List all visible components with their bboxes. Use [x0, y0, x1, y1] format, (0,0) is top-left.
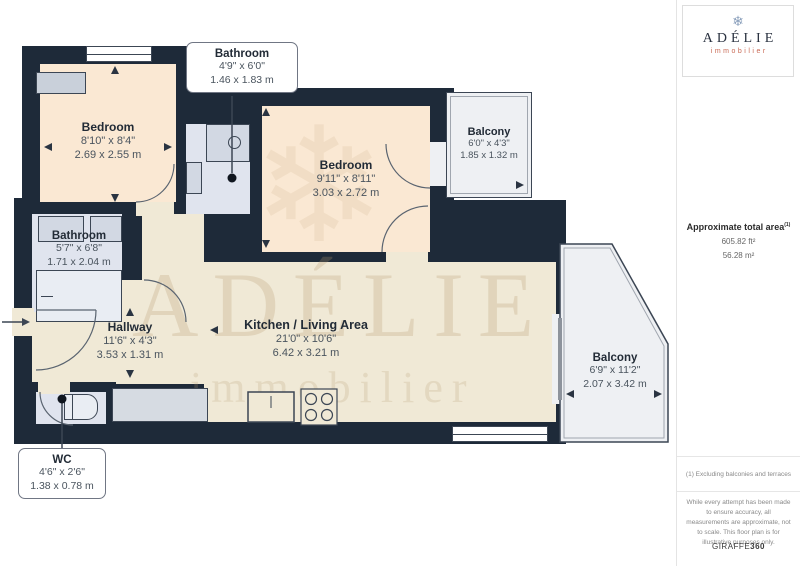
total-area-title: Approximate total area(1): [677, 222, 800, 232]
room-dim-metric: 1.71 x 2.04 m: [20, 256, 138, 270]
agency-logo: ❄ ADÉLIE immobilier: [682, 5, 794, 77]
room-name: Kitchen / Living Area: [196, 318, 416, 332]
door-opening: [38, 382, 70, 394]
room-floor-corridor: [142, 214, 204, 314]
door-opening: [136, 202, 174, 216]
room-dim-metric: 1.38 x 0.78 m: [21, 480, 103, 494]
total-area-imperial: 605.82 ft²: [677, 237, 800, 246]
room-label-bedroom-1: Bedroom 8'10" x 8'4" 2.69 x 2.55 m: [40, 120, 176, 163]
info-sidebar: ❄ ADÉLIE immobilier Approximate total ar…: [676, 0, 800, 566]
room-dim-imperial: 4'6" x 2'6": [21, 466, 103, 480]
room-label-hallway: Hallway 11'6" x 4'3" 3.53 x 1.31 m: [58, 320, 202, 363]
shower-drain-icon: [228, 136, 241, 149]
room-name: Bathroom: [189, 48, 295, 60]
room-dim-imperial: 21'0" x 10'6": [196, 332, 416, 346]
room-dim-metric: 1.85 x 1.32 m: [444, 150, 534, 162]
window: [86, 46, 152, 62]
floorplan-page: ❄ ADÉLIE immobilier: [0, 0, 800, 566]
room-label-bathroom-left: Bathroom 5'7" x 6'8" 1.71 x 2.04 m: [20, 230, 138, 269]
agency-tagline: immobilier: [683, 48, 793, 55]
total-area-block: Approximate total area(1) 605.82 ft² 56.…: [677, 222, 800, 260]
room-name: Hallway: [58, 320, 202, 334]
room-dim-metric: 3.53 x 1.31 m: [58, 348, 202, 362]
total-area-metric: 56.28 m²: [677, 251, 800, 260]
window: [452, 426, 548, 442]
bathtub: [36, 270, 122, 322]
room-dim-metric: 2.69 x 2.55 m: [40, 148, 176, 162]
balcony-bottom-outline: [560, 244, 668, 442]
room-dim-metric: 2.07 x 3.42 m: [556, 378, 674, 392]
room-dim-imperial: 6'9" x 11'2": [556, 364, 674, 378]
room-dim-imperial: 5'7" x 6'8": [20, 242, 138, 256]
door-opening: [122, 280, 144, 322]
giraffe360-brand: GIRAFFE360: [677, 542, 800, 551]
callout-wc: WC 4'6" x 2'6" 1.38 x 0.78 m: [18, 448, 106, 499]
toilet-tank-line: [72, 395, 73, 419]
kitchen-counter: [112, 388, 208, 422]
room-name: Bedroom: [258, 158, 434, 172]
toilet: [64, 394, 98, 420]
shower: [206, 124, 250, 162]
room-name: Bathroom: [20, 230, 138, 242]
disclaimer-text: While every attempt has been made to ens…: [677, 498, 800, 548]
room-name: Balcony: [444, 126, 534, 138]
wall-block: [430, 200, 566, 258]
sink: [186, 162, 202, 194]
callout-bathroom-top: Bathroom 4'9" x 6'0" 1.46 x 1.83 m: [186, 42, 298, 93]
door-opening: [386, 252, 428, 264]
room-label-kitchen-living: Kitchen / Living Area 21'0" x 10'6" 6.42…: [196, 318, 416, 361]
room-label-bedroom-2: Bedroom 9'11" x 8'11" 3.03 x 2.72 m: [258, 158, 434, 201]
room-name: Bedroom: [40, 120, 176, 134]
agency-name: ADÉLIE: [683, 31, 793, 47]
entry-opening: [12, 308, 34, 336]
room-dim-imperial: 8'10" x 8'4": [40, 134, 176, 148]
room-dim-metric: 1.46 x 1.83 m: [189, 74, 295, 88]
snowflake-icon: ❄: [683, 14, 793, 30]
room-label-balcony-top: Balcony 6'0" x 4'3" 1.85 x 1.32 m: [444, 126, 534, 163]
footnote-marker: (1): [784, 222, 790, 228]
room-dim-imperial: 9'11" x 8'11": [258, 172, 434, 186]
room-name: Balcony: [556, 352, 674, 364]
room-dim-imperial: 6'0" x 4'3": [444, 138, 534, 150]
tap-icon: [41, 296, 53, 297]
wardrobe: [36, 72, 86, 94]
room-dim-imperial: 11'6" x 4'3": [58, 334, 202, 348]
footnote: (1) Excluding balconies and terraces: [677, 456, 800, 492]
room-label-balcony-bottom: Balcony 6'9" x 11'2" 2.07 x 3.42 m: [556, 352, 674, 391]
room-dim-metric: 6.42 x 3.21 m: [196, 346, 416, 360]
room-dim-metric: 3.03 x 2.72 m: [258, 186, 434, 200]
room-name: WC: [21, 454, 103, 466]
room-dim-imperial: 4'9" x 6'0": [189, 60, 295, 74]
